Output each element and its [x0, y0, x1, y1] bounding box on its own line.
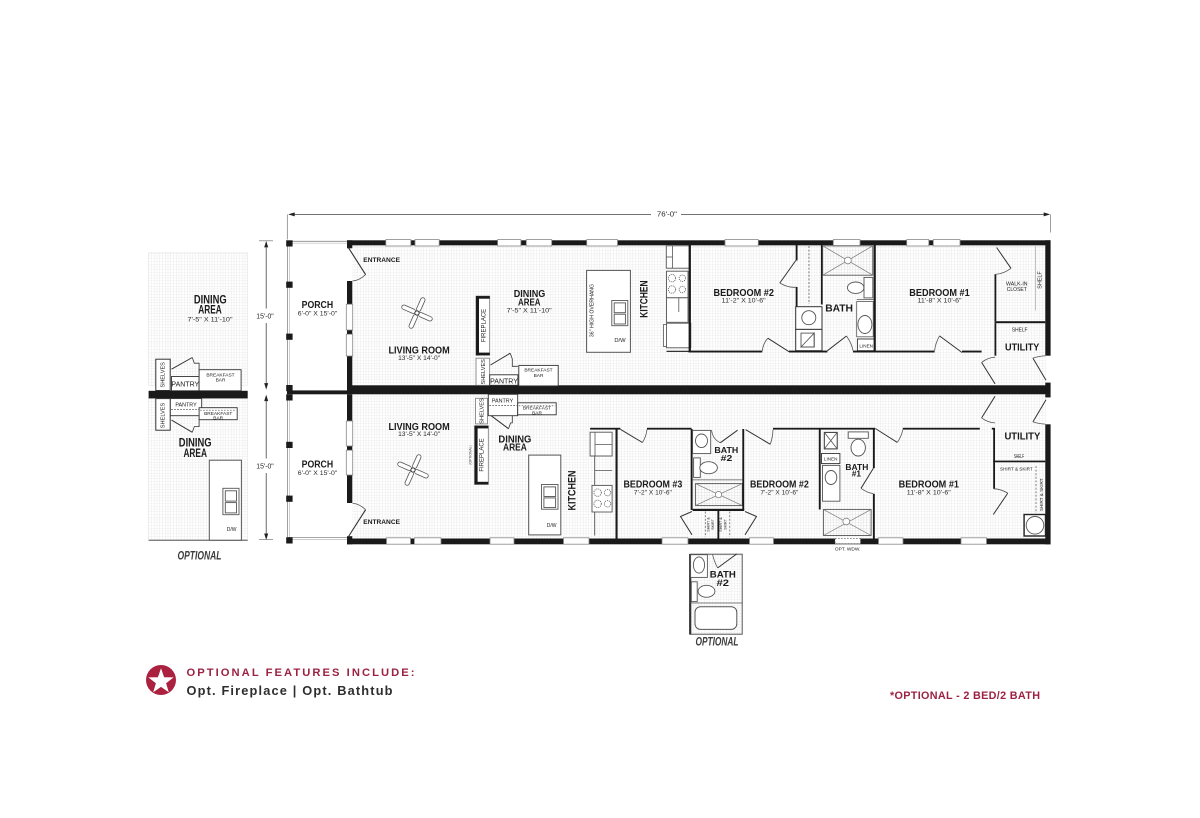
svg-text:AREA: AREA: [183, 447, 207, 460]
svg-text:15'-0": 15'-0": [256, 461, 274, 470]
svg-text:SKIRT: SKIRT: [723, 518, 727, 530]
svg-text:SHELVES: SHELVES: [160, 403, 166, 429]
svg-text:15'-0": 15'-0": [256, 311, 274, 320]
svg-text:11'-2" X 10'-6": 11'-2" X 10'-6": [722, 298, 766, 305]
svg-text:13'-5" X 14'-0": 13'-5" X 14'-0": [398, 355, 440, 362]
svg-text:PANTRY: PANTRY: [490, 378, 518, 385]
svg-text:76'-0": 76'-0": [657, 209, 677, 218]
svg-text:FIREPLACE: FIREPLACE: [480, 438, 486, 471]
svg-text:7'-2" X 10'-6": 7'-2" X 10'-6": [760, 489, 798, 496]
svg-text:PORCH: PORCH: [302, 460, 334, 471]
svg-text:LINEN: LINEN: [859, 343, 873, 348]
svg-text:#2: #2: [721, 454, 733, 463]
svg-text:11'-8" X 10'-6": 11'-8" X 10'-6": [918, 298, 962, 305]
svg-text:SHELVES: SHELVES: [481, 359, 487, 385]
svg-text:ENTRANCE: ENTRANCE: [363, 519, 400, 526]
svg-text:PANTRY: PANTRY: [171, 382, 199, 389]
svg-text:KITCHEN: KITCHEN: [639, 280, 651, 317]
svg-text:SHELVES: SHELVES: [160, 362, 166, 388]
svg-text:SHELF: SHELF: [1014, 454, 1024, 460]
svg-text:Opt. Fireplace | Opt. Bathtub: Opt. Fireplace | Opt. Bathtub: [187, 683, 393, 698]
svg-text:PORCH: PORCH: [302, 300, 334, 311]
svg-text:D/W: D/W: [227, 527, 237, 533]
svg-text:SHELF: SHELF: [1038, 271, 1044, 289]
svg-text:*OPTIONAL - 2 BED/2 BATH: *OPTIONAL - 2 BED/2 BATH: [890, 690, 1040, 702]
svg-text:BAR: BAR: [216, 378, 226, 384]
svg-text:CLOSET: CLOSET: [1007, 287, 1028, 293]
svg-text:7'-2" X 10'-6": 7'-2" X 10'-6": [634, 489, 672, 496]
svg-text:SHIRT & SKIRT: SHIRT & SKIRT: [1000, 467, 1033, 472]
svg-text:OPTIONAL: OPTIONAL: [696, 637, 739, 649]
svg-text:KITCHEN: KITCHEN: [567, 470, 579, 510]
svg-text:11'-8" X 10'-6": 11'-8" X 10'-6": [907, 489, 951, 496]
svg-text:AREA: AREA: [503, 443, 527, 454]
svg-text:FIREPLACE: FIREPLACE: [481, 309, 487, 342]
svg-text:#2: #2: [717, 578, 730, 588]
svg-text:UTILITY: UTILITY: [1005, 343, 1040, 354]
svg-text:AREA: AREA: [198, 304, 222, 317]
svg-text:13'-5" X 14'-0": 13'-5" X 14'-0": [398, 431, 440, 438]
svg-text:#1: #1: [852, 470, 862, 479]
svg-text:BREAKFAST: BREAKFAST: [524, 368, 552, 374]
svg-text:BAR: BAR: [534, 373, 544, 379]
svg-text:PANTRY: PANTRY: [175, 402, 197, 408]
svg-text:D/W: D/W: [614, 338, 626, 344]
svg-text:36" HIGH OVERHANG: 36" HIGH OVERHANG: [590, 284, 596, 337]
svg-text:UTILITY: UTILITY: [1004, 431, 1040, 442]
svg-text:SHIRT & SKIRT: SHIRT & SKIRT: [1039, 478, 1044, 511]
svg-text:BAR: BAR: [213, 415, 223, 421]
svg-text:BAR: BAR: [532, 410, 542, 416]
svg-text:6'-0" X 15'-0": 6'-0" X 15'-0": [298, 310, 338, 317]
svg-text:BATH: BATH: [825, 304, 853, 315]
svg-text:ENTRANCE: ENTRANCE: [363, 257, 400, 264]
svg-text:(OPTIONAL): (OPTIONAL): [469, 445, 473, 464]
svg-text:SHELVES: SHELVES: [479, 398, 485, 424]
svg-text:SKIRT: SKIRT: [711, 518, 715, 530]
svg-text:LINEN: LINEN: [824, 456, 838, 461]
svg-text:PANTRY: PANTRY: [492, 399, 514, 405]
svg-text:7'-5" X 11'-10": 7'-5" X 11'-10": [188, 316, 233, 323]
svg-text:OPTIONAL: OPTIONAL: [178, 550, 222, 562]
svg-text:7'-5" X 11'-10": 7'-5" X 11'-10": [507, 307, 552, 314]
svg-text:6'-0" X 15'-0": 6'-0" X 15'-0": [298, 470, 338, 477]
svg-text:OPT. WDW.: OPT. WDW.: [835, 547, 861, 553]
svg-text:SHELF: SHELF: [1012, 328, 1028, 334]
svg-text:D/W: D/W: [547, 523, 557, 529]
